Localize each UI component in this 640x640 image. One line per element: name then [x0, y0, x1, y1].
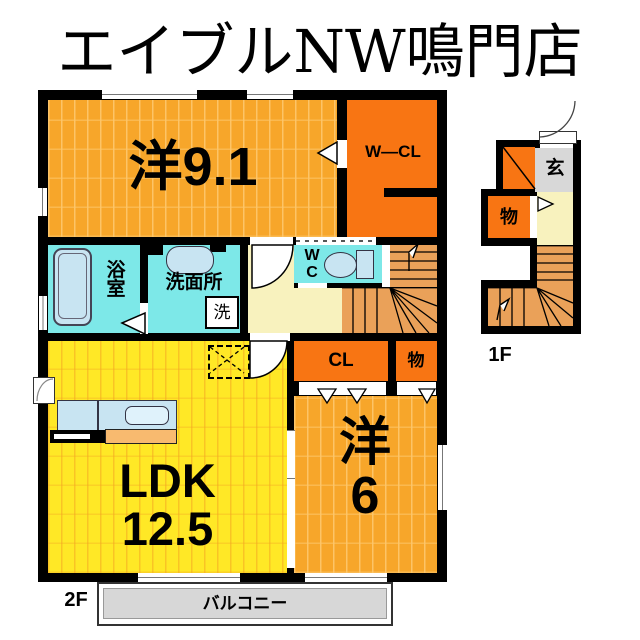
- window-right-western6: [438, 445, 447, 510]
- sliding-door-panel-lower: [287, 478, 295, 568]
- kitchen-counter-divider: [97, 401, 99, 430]
- room-bath-label: 浴 室: [103, 252, 129, 308]
- walkin-closet-stub-wall: [384, 188, 437, 197]
- window-top-east: [247, 90, 293, 99]
- window-toilet-high: [296, 237, 376, 245]
- room-western-9-1-label: 洋9.1: [88, 134, 298, 202]
- folding-door-cl: [299, 382, 386, 395]
- sink-counter-edge-left: [148, 245, 163, 255]
- sink-counter-edge-right: [210, 245, 226, 252]
- balcony: バルコニー: [97, 582, 393, 626]
- folding-door-mono: [397, 382, 436, 395]
- stairs-1f-upper: [537, 245, 573, 287]
- bathtub-inner: [58, 253, 87, 319]
- window-balcony-western6: [305, 573, 387, 582]
- door-gap-toilet: [298, 283, 327, 288]
- door-gap-mono-1f: [530, 196, 537, 238]
- floor-1f-label: 1F: [483, 344, 517, 366]
- hall-floor-upper: [248, 245, 294, 333]
- entrance-genkan-label: 玄: [544, 158, 566, 180]
- toilet-bowl: [324, 252, 357, 278]
- bathtub: [53, 248, 92, 326]
- hall-floor-lower: [294, 288, 342, 333]
- kitchen-half-wall-cap: [54, 434, 90, 439]
- door-gap-hall-ldk: [250, 333, 290, 341]
- kitchen-sink: [125, 406, 169, 425]
- closet-mono-label: 物: [403, 351, 429, 371]
- entry-door-leaf: [539, 131, 577, 144]
- room-walkin-closet-floor: [347, 100, 437, 237]
- room-western-6-label: 洋 6: [330, 405, 400, 535]
- balcony-slab: バルコニー: [103, 588, 387, 619]
- kitchen-bar-counter: [105, 429, 177, 444]
- understairs-storage-1f: [503, 147, 535, 189]
- closet-cl-label: CL: [316, 350, 366, 372]
- door-gap-hall-bedroom: [250, 237, 293, 245]
- stairs-top-door: [382, 245, 390, 287]
- window-left-bath: [39, 296, 47, 330]
- stairs-2f-lower: [342, 287, 390, 333]
- washer-label: 洗: [214, 304, 231, 321]
- balcony-label: バルコニー: [203, 595, 288, 612]
- window-top-west: [102, 90, 197, 99]
- room-ldk-label: LDK 12.5: [75, 445, 260, 565]
- door-gap-wcl: [337, 140, 347, 168]
- window-left-bedroom: [38, 188, 47, 216]
- sliding-door-panel-upper: [287, 430, 295, 479]
- door-gap-bath: [140, 303, 148, 334]
- hall-1f-floor: [537, 192, 573, 245]
- toilet-tank: [356, 250, 374, 279]
- refrigerator-space: [208, 345, 250, 379]
- room-walkin-closet-label: W—CL: [352, 140, 434, 164]
- room-washroom-label: 洗面所: [152, 272, 236, 294]
- washer-space: 洗: [205, 296, 239, 329]
- floor-2f-label: 2F: [58, 589, 94, 611]
- floorplan-page: エイブルNW鳴門店 洗: [0, 0, 640, 640]
- stairs-2f-upper: [390, 245, 437, 333]
- room-toilet-label: W C: [302, 247, 322, 282]
- washbasin: [166, 246, 214, 274]
- storage-mono-1f-label: 物: [497, 206, 521, 228]
- store-title: エイブルNW鳴門店: [10, 6, 630, 86]
- window-balcony-ldk: [138, 573, 240, 582]
- stairs-1f-lower: [488, 287, 573, 326]
- ldk-service-door: [33, 377, 55, 404]
